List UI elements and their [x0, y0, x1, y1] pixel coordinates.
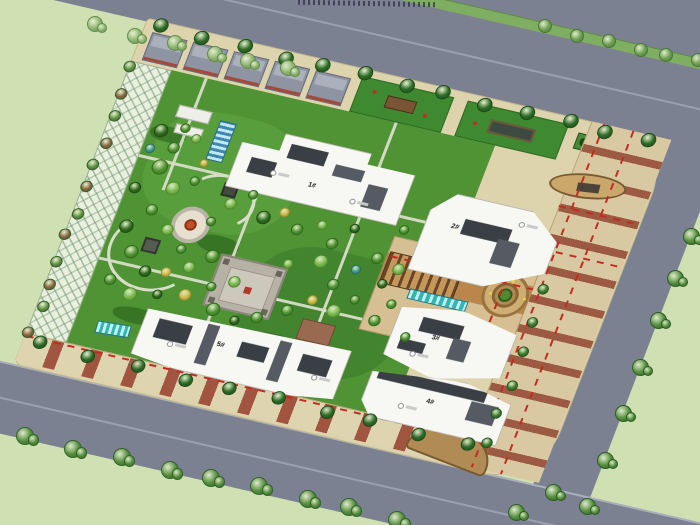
tree-icon — [519, 511, 529, 521]
tree-icon — [172, 468, 183, 479]
building-annotation-text — [405, 405, 417, 410]
building-core — [332, 164, 366, 182]
roundabout-light — [522, 297, 526, 300]
tree-icon — [678, 277, 688, 287]
fountain-feature — [183, 218, 199, 232]
reflecting-pool — [486, 119, 536, 142]
tree-icon — [643, 366, 653, 376]
tree-icon — [400, 518, 411, 525]
plaza-red-feature — [422, 114, 427, 119]
building-annotation-mark — [166, 341, 174, 348]
building-annotation-text — [526, 224, 538, 229]
building-core — [236, 342, 269, 363]
building-annotation-mark — [348, 198, 356, 205]
tree-icon — [310, 497, 321, 508]
tree-icon — [538, 19, 552, 33]
plaza-red-feature — [243, 286, 252, 294]
plaza-red-feature — [472, 121, 477, 126]
tree-icon — [691, 53, 700, 67]
tree-icon — [570, 29, 584, 43]
site-plan-canvas: 1#2#3#4#5# — [0, 0, 700, 525]
building-annotation-mark — [269, 170, 277, 177]
building-annotation-text — [278, 172, 290, 177]
plaza-corner-post — [222, 258, 230, 265]
tree-icon — [602, 34, 616, 48]
building-core — [153, 318, 193, 344]
building-core — [360, 184, 388, 211]
building-annotation-mark — [397, 403, 405, 410]
tree-icon — [262, 484, 273, 495]
building-core — [489, 239, 520, 268]
building-core — [446, 338, 471, 363]
tree-icon — [556, 491, 566, 501]
building-annotation-text — [417, 353, 429, 358]
tree-icon — [590, 505, 600, 515]
building-annotation-mark — [409, 350, 417, 357]
tree-icon — [290, 67, 300, 77]
building-annotation-text — [319, 377, 331, 382]
pergola-pavilion — [384, 95, 418, 114]
tree-icon — [124, 455, 135, 466]
tree-icon — [250, 60, 260, 70]
tree-icon — [28, 434, 39, 445]
tree-icon — [626, 412, 636, 422]
tree-icon — [76, 447, 87, 458]
tree-icon — [351, 505, 362, 516]
square-plaza-inner — [218, 267, 276, 311]
tree-icon — [217, 53, 227, 63]
plaza-red-feature — [372, 90, 377, 95]
building-annotation-mark — [310, 374, 318, 381]
building-core — [418, 317, 464, 341]
tree-icon — [214, 476, 225, 487]
building-annotation-mark — [518, 221, 526, 228]
tree-icon — [608, 459, 618, 469]
building-core — [287, 144, 329, 167]
tree-icon — [97, 23, 107, 33]
plaza-corner-post — [275, 270, 283, 277]
building-core — [266, 340, 293, 382]
tree-icon — [661, 319, 671, 329]
